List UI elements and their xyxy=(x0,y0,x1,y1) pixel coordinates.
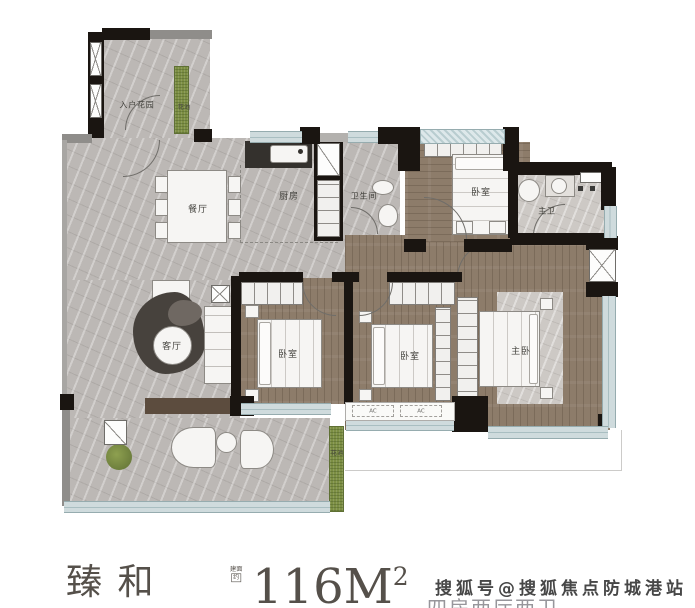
room-label-bedroom-top: 卧室 xyxy=(471,184,491,198)
wall-left-thin xyxy=(62,140,67,396)
kitchen-tall-cabinet xyxy=(317,143,340,176)
open-kitchen-boundary-h xyxy=(240,242,338,243)
master-bath-toilet xyxy=(518,179,540,202)
wall-right-top xyxy=(601,167,616,210)
wardrobe-bedroom-left xyxy=(241,282,303,305)
room-label-master-bedroom: 主卧 xyxy=(511,343,531,357)
shower-head-mark xyxy=(578,186,583,191)
footer-clipped-text: 四房两厅两卫 xyxy=(427,592,559,608)
wall-balcony-left xyxy=(62,406,70,506)
room-label-entry-garden: 入户花园 xyxy=(119,98,154,110)
tv-cabinet xyxy=(145,398,231,414)
balcony-planter-box xyxy=(104,420,127,445)
nightstand xyxy=(540,298,553,310)
dining-chair xyxy=(155,222,168,239)
outer-line-h xyxy=(345,470,622,471)
bed-bench xyxy=(489,221,506,234)
ac-label-1: AC xyxy=(369,408,377,414)
wall-post xyxy=(300,127,320,144)
window-bedroom-left-bottom xyxy=(241,403,331,415)
shower-head-mark xyxy=(590,186,595,191)
wall-bedroom-mid-top xyxy=(387,272,462,282)
wall-entry-top-gray xyxy=(150,30,212,39)
wall-right-block xyxy=(586,236,618,250)
area-prefix-line1: 建面 xyxy=(230,566,242,573)
window-kitchen xyxy=(250,131,302,143)
window-right-2 xyxy=(602,296,616,428)
entry-window-symbol xyxy=(90,42,102,76)
flower-bed-bottom xyxy=(329,426,344,512)
kitchen-fridge-cabinet xyxy=(317,180,340,237)
wall-post xyxy=(345,272,359,282)
bay-window-bedroom-top xyxy=(420,129,505,144)
kitchen-sink xyxy=(270,145,308,163)
room-label-master-bath: 主卫 xyxy=(538,204,556,216)
bed-pillows-mid xyxy=(373,327,385,385)
floor-plan-image: AC AC 入户花园 花池 餐厅 厨房 卫生间 卧室 主卫 客厅 卧室 卧室 主… xyxy=(0,0,695,608)
shaft-symbol xyxy=(589,249,616,282)
area-prefix: 建面 约 xyxy=(230,566,242,582)
bathroom-toilet xyxy=(378,204,398,227)
wall-post xyxy=(60,394,74,410)
flower-bed-top xyxy=(174,66,189,134)
nightstand xyxy=(245,305,259,318)
room-label-living: 客厅 xyxy=(162,338,182,352)
wall-bedroom-top-corner xyxy=(398,127,420,171)
wall-entry-top xyxy=(102,28,150,40)
balcony-railing xyxy=(64,501,330,513)
dining-chair xyxy=(155,199,168,216)
balcony-plant xyxy=(106,444,132,470)
wall-post xyxy=(194,129,212,142)
entry-window-symbol xyxy=(90,84,102,118)
bed-pillows-left xyxy=(259,322,271,385)
ac-label-2: AC xyxy=(417,408,425,414)
lounge-chair xyxy=(240,430,274,469)
room-label-flower-bed-bottom: 花池 xyxy=(331,447,343,456)
room-label-bedroom-left: 卧室 xyxy=(278,346,298,360)
room-label-flower-bed-top: 花池 xyxy=(178,101,190,110)
balcony-side-table xyxy=(216,432,237,453)
open-kitchen-boundary-v xyxy=(240,165,241,243)
dining-chair xyxy=(155,176,168,193)
nightstand xyxy=(540,387,553,399)
window-master-bottom xyxy=(488,426,608,439)
window-right-1 xyxy=(604,206,617,238)
kitchen-faucet xyxy=(298,149,303,154)
room-label-bathroom: 卫生间 xyxy=(351,189,377,201)
wall-post xyxy=(378,127,400,144)
wall-bedroom-masterbath-divider xyxy=(508,170,518,238)
plan-name: 臻 和 xyxy=(66,565,155,601)
wardrobe-master-2 xyxy=(457,297,478,405)
room-label-bedroom-mid: 卧室 xyxy=(400,348,420,362)
area-number: 116M xyxy=(252,559,393,608)
wall-living-bedroom-divider xyxy=(231,276,241,404)
wall-bedroom-top-bottom-a xyxy=(404,239,426,252)
wall-bedroom-top-bottom-b xyxy=(464,239,512,252)
wall-bedrooms-divider xyxy=(344,282,353,404)
wall-segment xyxy=(320,133,348,142)
bed-pillows-top xyxy=(455,157,506,170)
lounge-chair xyxy=(171,427,216,468)
wall-bedroom-left-top xyxy=(239,272,303,282)
area-superscript: 2 xyxy=(393,562,409,591)
wall-corner-block xyxy=(452,396,488,432)
area-value: 116M2 xyxy=(252,563,409,608)
master-bath-basin xyxy=(551,178,567,194)
outer-line-v xyxy=(621,430,622,471)
room-label-dining: 餐厅 xyxy=(188,201,208,215)
wall-right-block xyxy=(586,282,618,297)
wardrobe-master-1 xyxy=(435,307,451,401)
wardrobe-bedroom-mid xyxy=(389,282,455,305)
room-label-kitchen: 厨房 xyxy=(279,188,299,202)
living-stool xyxy=(211,285,230,303)
window-bathroom xyxy=(348,131,378,143)
nightstand xyxy=(359,389,372,401)
area-prefix-line2: 约 xyxy=(231,573,241,582)
